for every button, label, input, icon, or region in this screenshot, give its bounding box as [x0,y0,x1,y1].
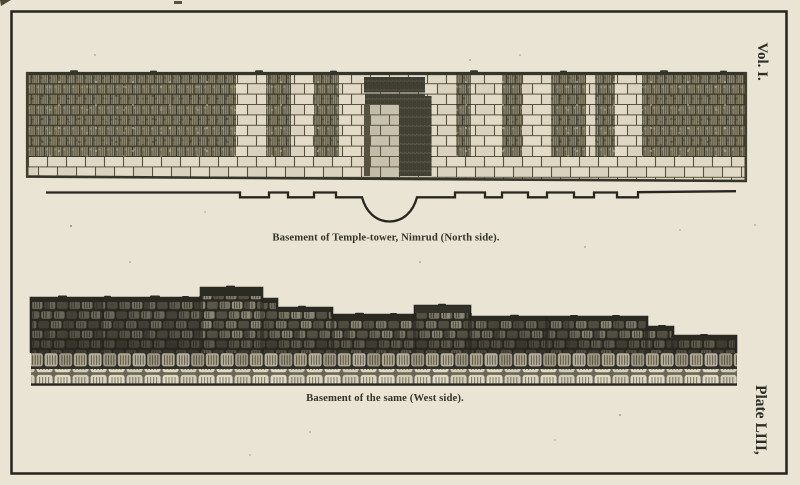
svg-text:Basement of the same (West sid: Basement of the same (West side). [306,392,464,404]
svg-text:Vol. I.: Vol. I. [754,43,770,81]
svg-text:Basement of Temple-tower, Nimr: Basement of Temple-tower, Nimrud (North … [272,232,499,244]
svg-text:Plate LIII,: Plate LIII, [752,385,769,455]
